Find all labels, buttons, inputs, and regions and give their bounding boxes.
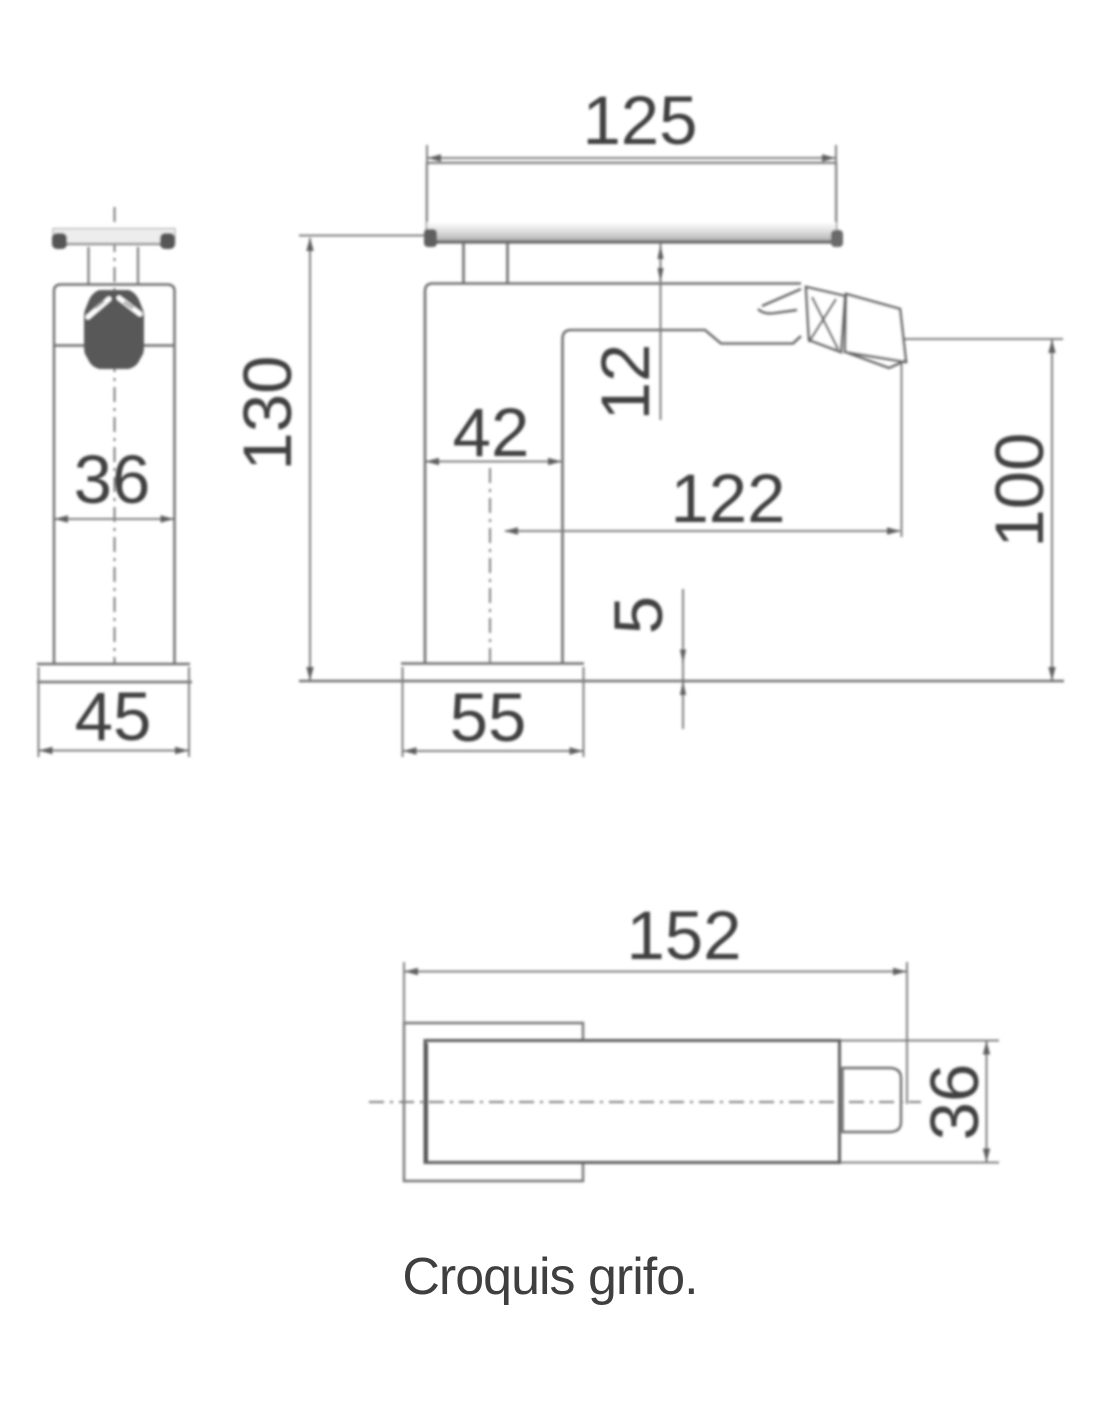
svg-text:45: 45 [75,678,152,755]
svg-text:Croquis grifo.: Croquis grifo. [402,1248,697,1306]
svg-text:36: 36 [916,1064,993,1141]
svg-text:5: 5 [600,596,677,634]
svg-text:152: 152 [626,897,741,974]
svg-text:12: 12 [587,344,664,421]
svg-text:100: 100 [981,432,1058,547]
svg-text:36: 36 [74,441,151,518]
svg-text:55: 55 [450,679,527,756]
svg-text:122: 122 [670,460,785,537]
svg-text:42: 42 [453,394,530,471]
svg-text:130: 130 [229,355,306,470]
svg-text:125: 125 [582,82,697,159]
